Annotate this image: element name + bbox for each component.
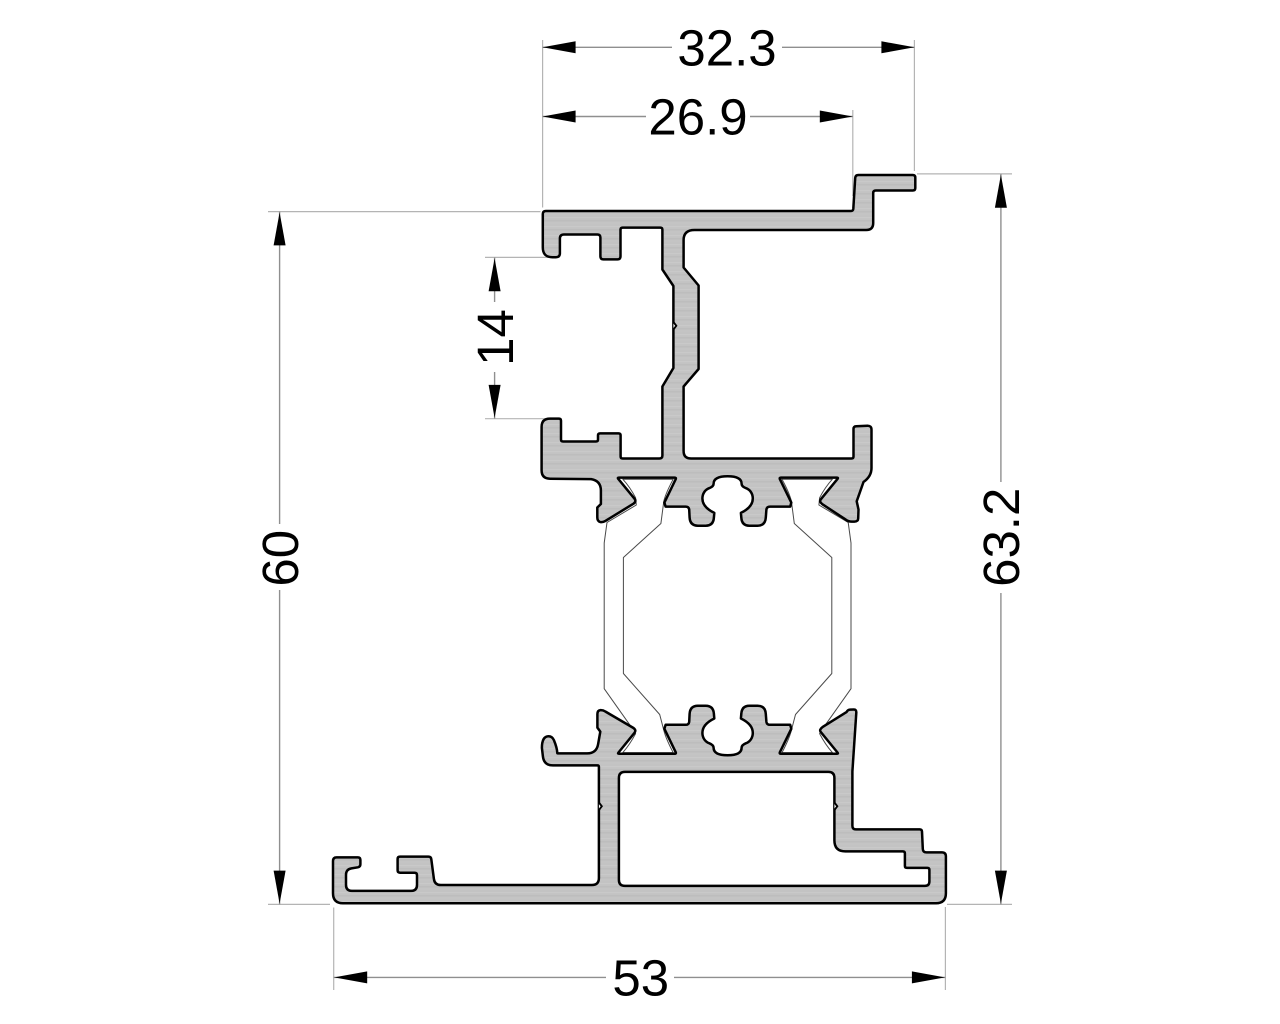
svg-text:53: 53 [612,950,669,1007]
svg-text:63.2: 63.2 [973,488,1030,587]
svg-text:60: 60 [252,530,309,587]
svg-text:26.9: 26.9 [648,89,747,146]
svg-text:14: 14 [467,309,524,366]
svg-text:32.3: 32.3 [677,20,776,77]
